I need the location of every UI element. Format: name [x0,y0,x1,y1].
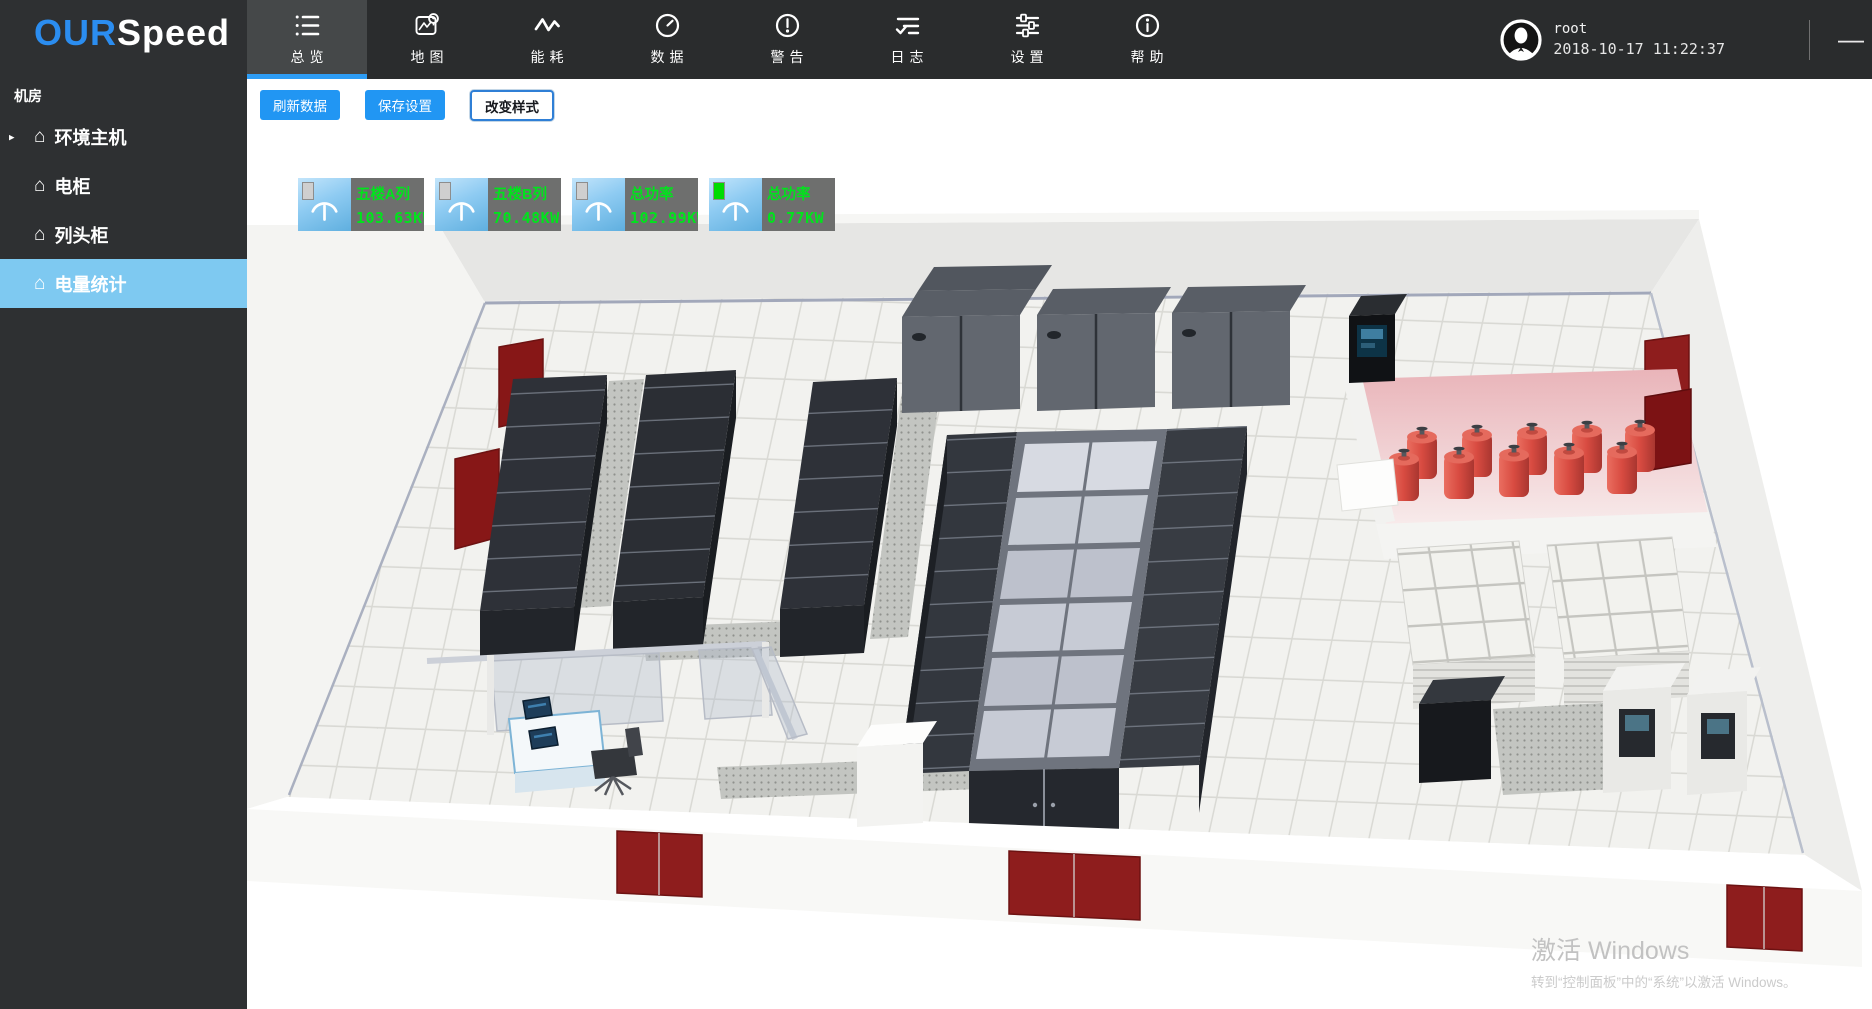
tab-label: 数据 [646,47,689,67]
brand-logo-prefix: OUR [34,12,117,53]
map-icon [414,12,441,39]
tab-settings[interactable]: 设置 [967,0,1087,79]
tab-label: 警告 [766,47,809,67]
room-walls [247,210,1862,891]
refresh-data-button[interactable]: 刷新数据 [260,90,340,120]
user-avatar[interactable] [1500,19,1542,61]
fire-suppression-room [1337,369,1717,559]
log-icon [894,12,921,39]
kpi-name: 五楼A列 [356,183,422,204]
home-icon: ⌂ [34,273,45,295]
power-meter-icon [298,178,351,231]
tab-label: 设置 [1006,47,1049,67]
sidebar-item-power-cabinet[interactable]: ⌂ 电柜 [0,161,247,210]
sidebar-item-label: 环境主机 [54,124,126,150]
watermark-title: 激活 Windows [1531,931,1797,967]
tab-label: 总览 [286,47,329,67]
tab-help[interactable]: 帮助 [1087,0,1207,79]
sidebar-item-label: 电量统计 [54,271,126,297]
windows-activation-watermark: 激活 Windows 转到“控制面板”中的“系统”以激活 Windows。 [1531,931,1797,991]
kpi-value: 102.99KW [630,209,696,227]
kpi-text: 五楼B列 70.48KW [488,178,561,231]
tab-label: 日志 [886,47,929,67]
username: root [1553,21,1725,37]
office-area [427,642,807,795]
main-content: 刷新数据 保存设置 改变样式 五楼A列 103.63KW [247,79,1872,1009]
watermark-subtitle: 转到“控制面板”中的“系统”以激活 Windows。 [1531,971,1797,991]
save-settings-button[interactable]: 保存设置 [365,90,445,120]
wall-doors [455,335,1689,549]
expand-arrow-icon: ▸ [9,130,15,143]
power-meter-icon [572,178,625,231]
datetime: 2018-10-17 11:22:37 [1553,40,1725,58]
tab-label: 地图 [406,47,449,67]
help-icon [1134,12,1161,39]
sidebar-item-env-host[interactable]: ▸ ⌂ 环境主机 [0,112,247,161]
kpi-text: 五楼A列 103.63KW [351,178,424,231]
kpi-text: 总功率 0.77KW [762,178,835,231]
home-icon: ⌂ [34,126,45,148]
sidebar-item-label: 列头柜 [54,222,108,248]
kpi-text: 总功率 102.99KW [625,178,698,231]
energy-icon [534,12,561,39]
tab-log[interactable]: 日志 [847,0,967,79]
tab-map[interactable]: 地图 [367,0,487,79]
kpi-name: 总功率 [630,183,696,204]
sidebar: OURSpeed 机房 ▸ ⌂ 环境主机 ⌂ 电柜 ⌂ 列头柜 ⌂ 电量统计 [0,0,247,1009]
alert-icon [774,12,801,39]
battery-ups-zone [1397,537,1761,795]
home-icon: ⌂ [34,224,45,246]
window-divider [1809,20,1810,60]
kpi-row: 五楼A列 103.63KW 五楼B列 70.48KW [298,178,835,231]
minimize-button[interactable]: — [1830,24,1872,55]
sidebar-section-label: 机房 [0,62,247,112]
sidebar-item-power-stats[interactable]: ⌂ 电量统计 [0,259,247,308]
server-rack-rows-left [480,370,897,659]
kpi-badge-floor5-rowA[interactable]: 五楼A列 103.63KW [298,178,424,231]
kpi-name: 总功率 [767,183,833,204]
gauge-icon [654,12,681,39]
tab-label: 帮助 [1126,47,1169,67]
kpi-value: 0.77KW [767,209,833,227]
tab-data[interactable]: 数据 [607,0,727,79]
kpi-value: 103.63KW [356,209,422,227]
tab-label: 能耗 [526,47,569,67]
change-style-button[interactable]: 改变样式 [470,90,554,121]
power-meter-icon [435,178,488,231]
kpi-badge-total-power-1[interactable]: 总功率 102.99KW [572,178,698,231]
home-icon: ⌂ [34,175,45,197]
user-block: root 2018-10-17 11:22:37 — [1500,0,1872,79]
monitoring-kiosk [1349,294,1407,383]
brand-logo: OURSpeed [0,0,247,62]
app-window: OURSpeed 机房 ▸ ⌂ 环境主机 ⌂ 电柜 ⌂ 列头柜 ⌂ 电量统计 [0,0,1872,1009]
sidebar-item-label: 电柜 [54,173,90,199]
sidebar-item-row-head-cabinet[interactable]: ⌂ 列头柜 [0,210,247,259]
settings-icon [1014,12,1041,39]
tab-energy[interactable]: 能耗 [487,0,607,79]
tab-overview[interactable]: 总览 [247,0,367,79]
brand-logo-suffix: Speed [117,12,230,53]
kpi-badge-floor5-rowB[interactable]: 五楼B列 70.48KW [435,178,561,231]
kpi-name: 五楼B列 [493,183,559,204]
top-nav-bar: 总览 地图 能耗 [247,0,1872,79]
kpi-value: 70.48KW [493,209,559,227]
power-meter-icon [709,178,762,231]
cold-aisle-containment [899,426,1247,841]
perforated-floor-strips [576,379,1613,799]
toolbar: 刷新数据 保存设置 改变样式 [260,90,554,121]
crac-cabinet-row [902,265,1306,413]
kpi-badge-total-power-2[interactable]: 总功率 0.77KW [709,178,835,231]
tab-alert[interactable]: 警告 [727,0,847,79]
list-icon [294,12,321,39]
